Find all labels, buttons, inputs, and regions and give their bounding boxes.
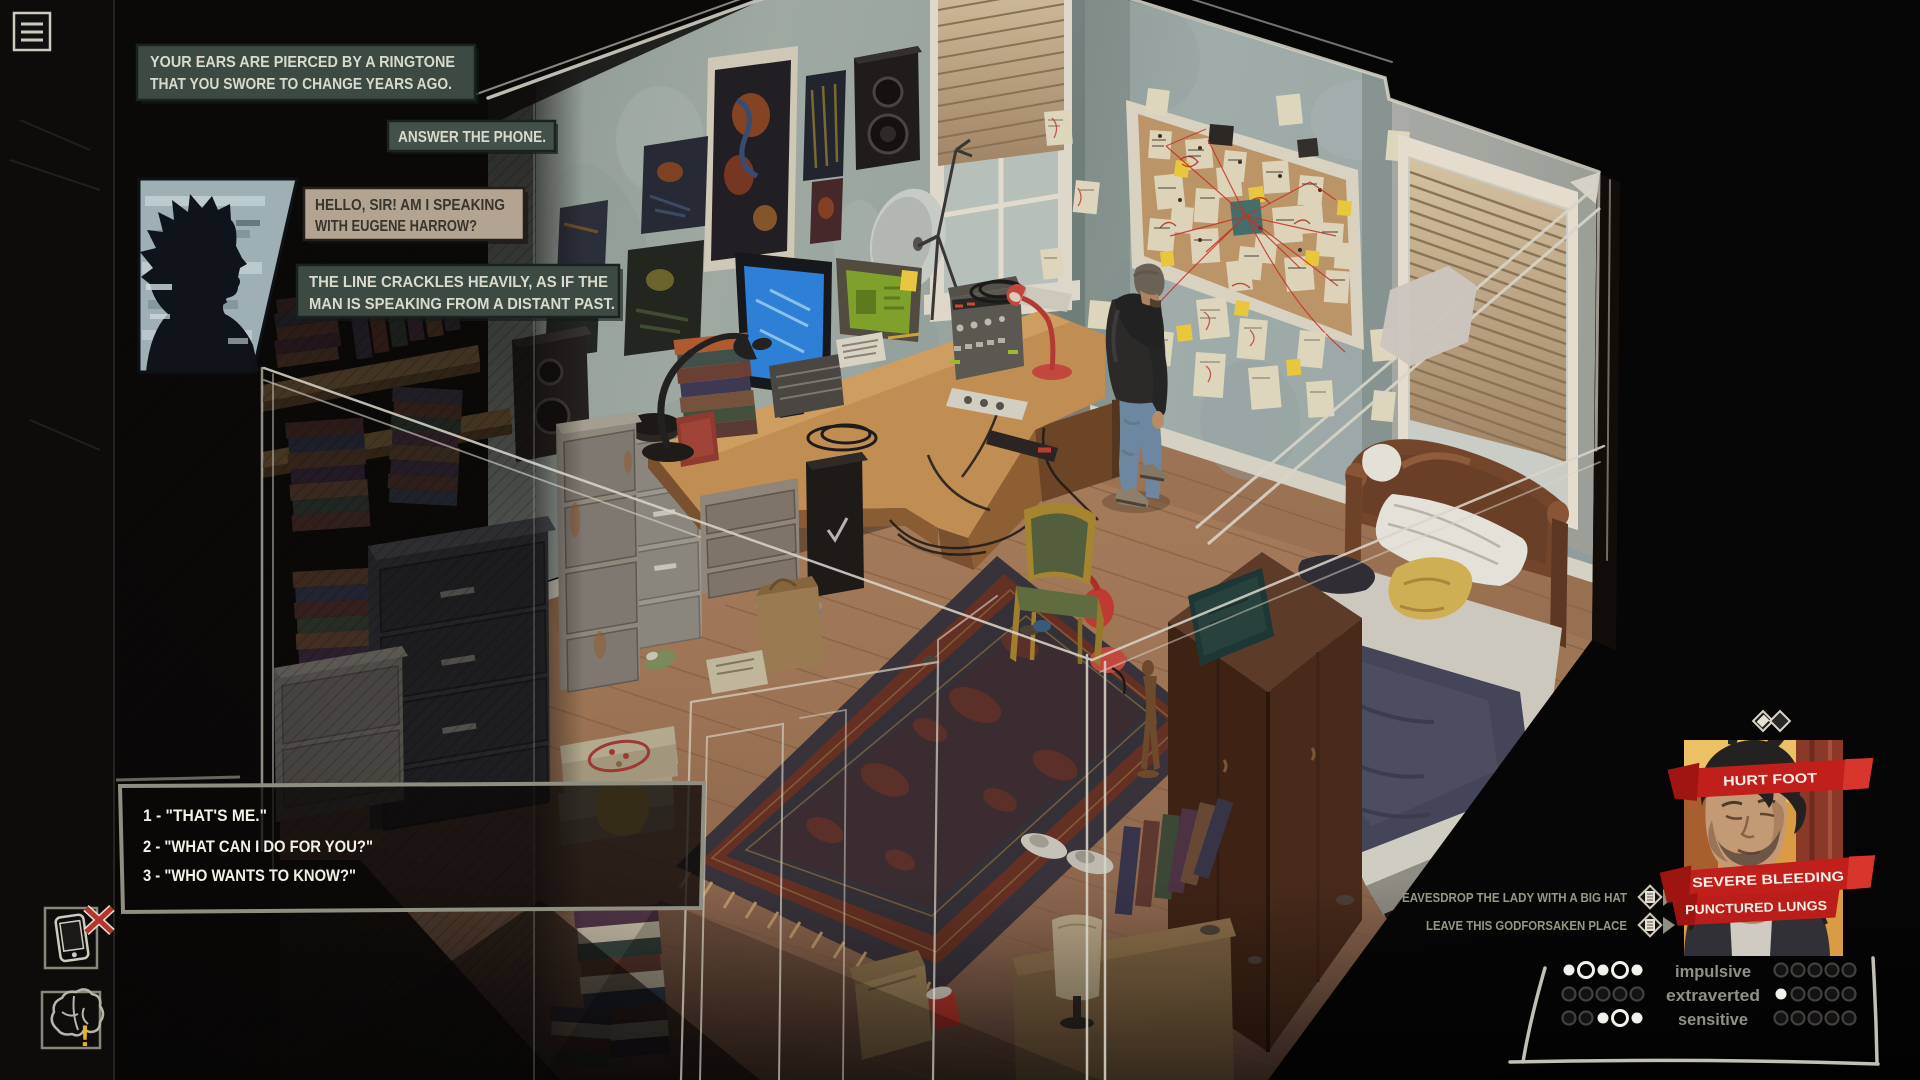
svg-text:ANSWER THE PHONE.: ANSWER THE PHONE. bbox=[398, 129, 546, 146]
svg-text:WITH EUGENE HARROW?: WITH EUGENE HARROW? bbox=[315, 218, 477, 235]
svg-text:THE LINE CRACKLES HEAVILY, AS: THE LINE CRACKLES HEAVILY, AS IF THE bbox=[309, 274, 608, 291]
svg-text:YOUR EARS ARE PIERCED BY A RIN: YOUR EARS ARE PIERCED BY A RINGTONE bbox=[150, 54, 455, 71]
svg-text:impulsive: impulsive bbox=[1675, 962, 1751, 981]
svg-text:3 - "WHO WANTS TO KNOW?": 3 - "WHO WANTS TO KNOW?" bbox=[143, 867, 356, 885]
svg-text:extraverted: extraverted bbox=[1666, 986, 1760, 1005]
svg-text:HELLO, SIR! AM I SPEAKING: HELLO, SIR! AM I SPEAKING bbox=[315, 197, 505, 214]
svg-text:THAT YOU SWORE TO CHANGE YEARS: THAT YOU SWORE TO CHANGE YEARS AGO. bbox=[150, 76, 452, 93]
svg-text:1 - "THAT'S ME.": 1 - "THAT'S ME." bbox=[143, 807, 267, 825]
svg-text:!: ! bbox=[80, 1020, 90, 1053]
svg-text:LEAVE THIS GODFORSAKEN PLACE: LEAVE THIS GODFORSAKEN PLACE bbox=[1426, 918, 1627, 933]
svg-text:2 - "WHAT CAN I DO FOR YOU?": 2 - "WHAT CAN I DO FOR YOU?" bbox=[143, 838, 373, 856]
svg-text:sensitive: sensitive bbox=[1678, 1010, 1748, 1029]
svg-text:MAN IS SPEAKING FROM A DISTANT: MAN IS SPEAKING FROM A DISTANT PAST. bbox=[309, 296, 615, 313]
svg-text:EAVESDROP THE LADY WITH A BIG: EAVESDROP THE LADY WITH A BIG HAT bbox=[1402, 890, 1627, 905]
